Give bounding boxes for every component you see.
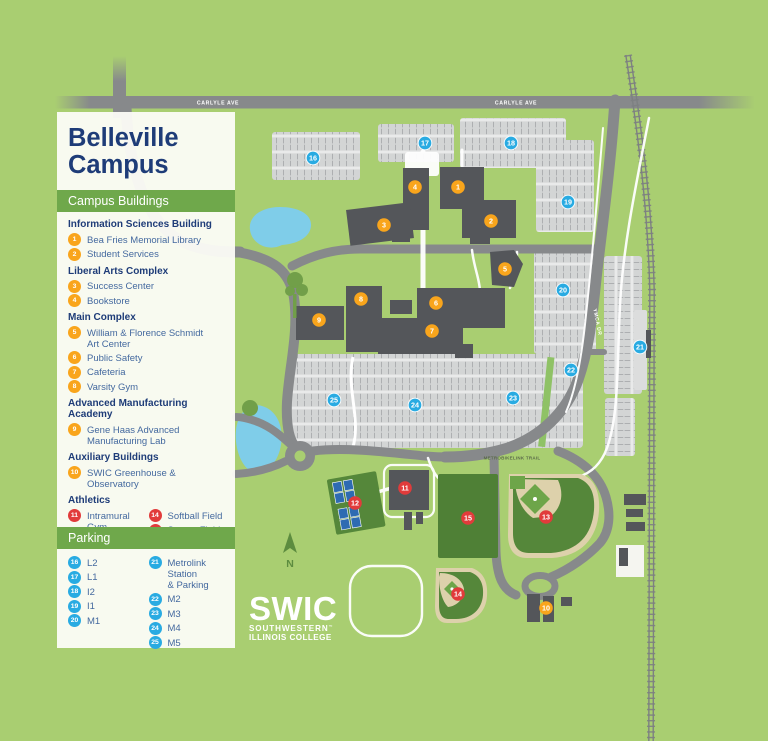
legend-item-number: 8	[68, 380, 81, 393]
legend-item-6: 6Public Safety	[68, 351, 229, 364]
marker-number: 10	[542, 604, 550, 613]
map-marker-10: 10	[539, 601, 553, 615]
marker-number: 17	[421, 139, 429, 148]
legend-item-7: 7Cafeteria	[68, 366, 229, 379]
legend-item-label: Varsity Gym	[87, 380, 138, 393]
legend-section-heading: Main Complex	[68, 312, 229, 323]
campus-buildings-list: Information Sciences Building1Bea Fries …	[57, 212, 235, 528]
marker-number: 16	[309, 154, 317, 163]
marker-number: 7	[430, 327, 434, 336]
marker-number: 6	[434, 299, 438, 308]
legend-item-number: 3	[68, 280, 81, 293]
parking-lot-19	[536, 140, 594, 232]
press-box	[619, 548, 628, 566]
legend-item-label: Bea Fries Memorial Library	[87, 233, 201, 246]
legend-item-4: 4Bookstore	[68, 294, 229, 307]
marker-number: 21	[636, 343, 644, 352]
map-marker-23: 23	[506, 391, 520, 405]
marker-number: 9	[317, 316, 321, 325]
legend-section: Liberal Arts Complex3Success Center4Book…	[68, 266, 229, 308]
marker-number: 13	[542, 513, 550, 522]
legend-item-number: 19	[68, 600, 81, 613]
marker-number: 15	[464, 514, 472, 523]
legend-item-number: 1	[68, 233, 81, 246]
legend-item-number: 22	[149, 593, 162, 606]
map-marker-17: 17	[418, 136, 432, 150]
legend-item-label: Intramural Gym	[87, 509, 149, 528]
map-marker-7: 7	[425, 324, 439, 338]
parking-column: 21Metrolink Station & Parking22M223M324M…	[149, 556, 230, 651]
legend-section-heading: Athletics	[68, 495, 229, 506]
legend-item-number: 25	[149, 636, 162, 649]
legend-column: 14Softball Field15Soccer Field	[149, 509, 230, 528]
legend-section: Auxiliary Buildings10SWIC Greenhouse & O…	[68, 452, 229, 490]
map-marker-22: 22	[564, 363, 578, 377]
map-marker-24: 24	[408, 398, 422, 412]
title-line1: Belleville	[68, 124, 179, 152]
map-marker-1: 1	[451, 180, 465, 194]
legend-item-number: 11	[68, 509, 81, 522]
marker-number: 18	[507, 139, 515, 148]
marker-number: 25	[330, 396, 338, 405]
map-marker-16: 16	[306, 151, 320, 165]
title-line2: Campus	[68, 151, 169, 179]
map-marker-12: 12	[348, 496, 362, 510]
legend-item-1: 1Bea Fries Memorial Library	[68, 233, 229, 246]
swic-logo-line2: SOUTHWESTERN	[249, 624, 329, 633]
map-marker-21: 21	[633, 340, 647, 354]
trail-label: METROBIKELINK TRAIL	[484, 456, 541, 461]
legend-section-heading: Liberal Arts Complex	[68, 266, 229, 277]
legend-item-number: 5	[68, 326, 81, 339]
legend-item-25: 25M5	[149, 636, 230, 649]
roundabout-center	[295, 451, 306, 462]
marker-number: 3	[382, 221, 386, 230]
legend-item-number: 21	[149, 556, 162, 569]
legend-item-number: 10	[68, 466, 81, 479]
legend-item-label: L1	[87, 571, 98, 584]
bleachers-2	[626, 509, 643, 517]
legend-item-24: 24M4	[149, 622, 230, 635]
map-marker-19: 19	[561, 195, 575, 209]
map-marker-2: 2	[484, 214, 498, 228]
legend-item-16: 16L2	[68, 556, 149, 569]
legend-column: 11Intramural Gym12Tennis Courts13Basebal…	[68, 509, 149, 528]
legend-section: Main Complex5William & Florence Schmidt …	[68, 312, 229, 393]
bleachers-1	[624, 494, 646, 505]
legend-item-number: 18	[68, 585, 81, 598]
legend-item-label: M5	[168, 636, 181, 649]
marker-number: 22	[567, 366, 575, 375]
legend-item-label: SWIC Greenhouse & Observatory	[87, 466, 229, 490]
map-marker-25: 25	[327, 393, 341, 407]
legend-item-number: 14	[149, 509, 162, 522]
map-marker-5: 5	[498, 262, 512, 276]
legend-item-number: 2	[68, 248, 81, 261]
marker-number: 2	[489, 217, 493, 226]
marker-number: 11	[401, 484, 409, 493]
legend-item-20: 20M1	[68, 614, 149, 627]
legend-item-number: 9	[68, 423, 81, 436]
legend-item-label: Bookstore	[87, 294, 130, 307]
legend-item-17: 17L1	[68, 571, 149, 584]
legend-section: Information Sciences Building1Bea Fries …	[68, 219, 229, 261]
legend-item-label: I1	[87, 600, 95, 613]
legend-item-number: 16	[68, 556, 81, 569]
legend-item-label: M2	[168, 593, 181, 606]
map-marker-13: 13	[539, 510, 553, 524]
legend-item-21: 21Metrolink Station & Parking	[149, 556, 230, 591]
legend-item-label: Public Safety	[87, 351, 142, 364]
legend-item-label: Success Center	[87, 280, 154, 293]
legend-item-label: L2	[87, 556, 98, 569]
map-marker-3: 3	[377, 218, 391, 232]
swic-logo-line3: ILLINOIS COLLEGE	[249, 633, 332, 642]
marker-number: 24	[411, 401, 419, 410]
building-greenhouse-1	[527, 594, 540, 622]
legend-item-label: I2	[87, 585, 95, 598]
legend-item-23: 23M3	[149, 607, 230, 620]
legend-item-number: 20	[68, 614, 81, 627]
marker-number: 8	[359, 295, 363, 304]
legend-item-9: 9Gene Haas Advanced Manufacturing Lab	[68, 423, 229, 447]
bleachers-3	[626, 522, 645, 531]
map-marker-11: 11	[398, 481, 412, 495]
road-carlyle-ave	[55, 96, 755, 109]
map-marker-14: 14	[451, 587, 465, 601]
road-label-carlyle-west: CARLYLE AVE	[197, 100, 239, 106]
legend-section: Advanced Manufacturing Academy9Gene Haas…	[68, 398, 229, 447]
legend-section-heading: Auxiliary Buildings	[68, 452, 229, 463]
legend-item-8: 8Varsity Gym	[68, 380, 229, 393]
road-north-vertical	[113, 56, 126, 106]
legend-section-heading: Information Sciences Building	[68, 219, 229, 230]
legend-item-number: 6	[68, 351, 81, 364]
marker-number: 12	[351, 499, 359, 508]
legend-item-label: Softball Field	[168, 509, 223, 522]
legend-item-number: 24	[149, 622, 162, 635]
legend-item-2: 2Student Services	[68, 248, 229, 261]
legend-item-number: 4	[68, 294, 81, 307]
marker-number: 5	[503, 265, 507, 274]
campus-buildings-header: Campus Buildings	[57, 190, 235, 212]
north-label: N	[286, 558, 294, 570]
marker-number: 4	[413, 183, 417, 192]
legend-item-18: 18I2	[68, 585, 149, 598]
road-label-carlyle-east: CARLYLE AVE	[495, 100, 537, 106]
legend-section-heading: Advanced Manufacturing Academy	[68, 398, 229, 420]
svg-text:SOUTHWESTERN™: SOUTHWESTERN™	[249, 624, 333, 633]
marker-number: 23	[509, 394, 517, 403]
legend-panel: BellevilleCampus Campus Buildings Inform…	[57, 112, 235, 648]
legend-section: Athletics11Intramural Gym12Tennis Courts…	[68, 495, 229, 528]
legend-item-label: M3	[168, 607, 181, 620]
marker-number: 20	[559, 286, 567, 295]
legend-item-number: 7	[68, 366, 81, 379]
legend-item-22: 22M2	[149, 593, 230, 606]
map-marker-15: 15	[461, 511, 475, 525]
swic-logo-tm: ™	[329, 624, 333, 629]
building-greenhouse-3	[561, 597, 572, 606]
parking-header: Parking	[57, 527, 235, 549]
legend-item-5: 5William & Florence Schmidt Art Center	[68, 326, 229, 350]
legend-item-3: 3Success Center	[68, 280, 229, 293]
legend-item-label: Student Services	[87, 248, 159, 261]
legend-item-19: 19I1	[68, 600, 149, 613]
parking-lot-metrolink-b	[605, 398, 635, 456]
parking-column: 16L217L118I219I120M1	[68, 556, 149, 651]
swic-logo: SWIC SOUTHWESTERN™ ILLINOIS COLLEGE	[249, 590, 337, 642]
map-marker-18: 18	[504, 136, 518, 150]
marker-number: 19	[564, 198, 572, 207]
legend-item-label: William & Florence Schmidt Art Center	[87, 326, 203, 350]
parking-list: 16L217L118I219I120M121Metrolink Station …	[57, 549, 235, 651]
marker-number: 1	[456, 183, 460, 192]
legend-item-number: 17	[68, 571, 81, 584]
legend-item-11: 11Intramural Gym	[68, 509, 149, 528]
map-marker-9: 9	[312, 313, 326, 327]
map-marker-4: 4	[408, 180, 422, 194]
legend-item-14: 14Softball Field	[149, 509, 230, 522]
legend-item-10: 10SWIC Greenhouse & Observatory	[68, 466, 229, 490]
map-marker-20: 20	[556, 283, 570, 297]
marker-number: 14	[454, 590, 462, 599]
map-marker-8: 8	[354, 292, 368, 306]
legend-item-label: Cafeteria	[87, 366, 126, 379]
legend-item-label: Metrolink Station & Parking	[168, 556, 230, 591]
legend-item-label: M1	[87, 614, 100, 627]
legend-item-number: 23	[149, 607, 162, 620]
map-marker-6: 6	[429, 296, 443, 310]
station-shelter	[646, 330, 651, 358]
campus-map-page: CARLYLE AVE CARLYLE AVE YMCA DR METROBIK…	[0, 0, 768, 741]
legend-item-label: M4	[168, 622, 181, 635]
swic-logo-word: SWIC	[249, 590, 337, 627]
legend-item-label: Gene Haas Advanced Manufacturing Lab	[87, 423, 179, 447]
